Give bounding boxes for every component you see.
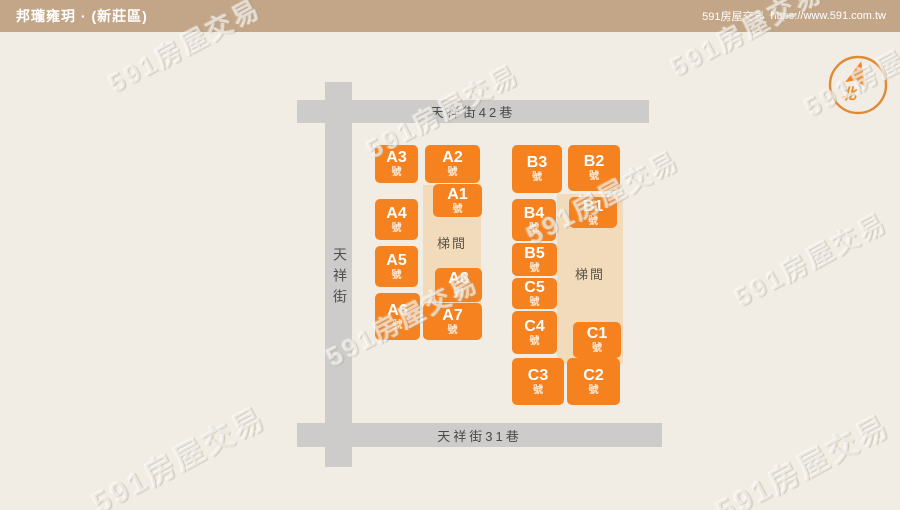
unit-label: C5 bbox=[524, 279, 544, 297]
page-title: 邦瓏雍玥 · (新莊區) bbox=[16, 6, 148, 26]
stair-label-bc: 梯間 bbox=[557, 264, 623, 283]
unit-label: C4 bbox=[524, 318, 544, 336]
watermark: 591房屋交易 bbox=[727, 203, 893, 315]
unit-label: B5 bbox=[524, 245, 544, 263]
unit-suffix: 號 bbox=[393, 320, 403, 332]
unit-block-B1[interactable]: B1號 bbox=[569, 197, 617, 228]
unit-label: C1 bbox=[587, 325, 607, 343]
unit-suffix: 號 bbox=[530, 263, 540, 275]
unit-label: B2 bbox=[584, 153, 604, 171]
unit-label: A4 bbox=[386, 205, 406, 223]
unit-suffix: 號 bbox=[589, 385, 599, 397]
unit-label: C2 bbox=[583, 367, 603, 385]
unit-block-A5[interactable]: A5號 bbox=[375, 246, 418, 287]
unit-suffix: 號 bbox=[529, 223, 539, 235]
north-compass-icon: 北 bbox=[827, 54, 889, 116]
stair-label-a: 梯間 bbox=[423, 233, 481, 252]
unit-label: C3 bbox=[528, 367, 548, 385]
site-url: https://www.591.com.tw bbox=[770, 10, 886, 22]
site-name: 591房屋交易 bbox=[702, 8, 764, 24]
unit-suffix: 號 bbox=[588, 216, 598, 228]
unit-block-B4[interactable]: B4號 bbox=[512, 199, 556, 241]
street-left-label: 天祥街 bbox=[330, 247, 350, 310]
unit-suffix: 號 bbox=[454, 288, 464, 300]
unit-suffix: 號 bbox=[448, 167, 458, 179]
unit-suffix: 號 bbox=[453, 204, 463, 216]
unit-block-C4[interactable]: C4號 bbox=[512, 311, 557, 354]
unit-label: B3 bbox=[527, 154, 547, 172]
unit-label: B1 bbox=[583, 198, 603, 216]
unit-label: B4 bbox=[524, 205, 544, 223]
watermark: 591房屋交易 bbox=[83, 394, 272, 510]
unit-label: A5 bbox=[386, 252, 406, 270]
street-top-lane42: 天祥街42巷 bbox=[297, 100, 649, 123]
unit-suffix: 號 bbox=[392, 223, 402, 235]
unit-block-B3[interactable]: B3號 bbox=[512, 145, 562, 193]
unit-block-A3[interactable]: A3號 bbox=[375, 145, 418, 183]
unit-block-A2[interactable]: A2號 bbox=[425, 145, 480, 183]
unit-label: A2 bbox=[442, 149, 462, 167]
unit-block-C3[interactable]: C3號 bbox=[512, 358, 564, 405]
unit-suffix: 號 bbox=[589, 171, 599, 183]
watermark: 591房屋交易 bbox=[707, 402, 896, 510]
unit-label: A8 bbox=[448, 270, 468, 288]
unit-suffix: 號 bbox=[392, 270, 402, 282]
unit-label: A1 bbox=[447, 186, 467, 204]
street-bottom-lane31: 天祥街31巷 bbox=[297, 423, 662, 447]
compass-svg: 北 bbox=[827, 54, 889, 116]
unit-block-C2[interactable]: C2號 bbox=[567, 358, 620, 405]
unit-suffix: 號 bbox=[532, 172, 542, 184]
street-top-label: 天祥街42巷 bbox=[297, 100, 649, 123]
street-bottom-label: 天祥街31巷 bbox=[297, 423, 662, 447]
svg-text:北: 北 bbox=[841, 86, 858, 103]
unit-block-A4[interactable]: A4號 bbox=[375, 199, 418, 240]
unit-suffix: 號 bbox=[530, 336, 540, 348]
unit-block-A7[interactable]: A7號 bbox=[423, 303, 482, 340]
site-credit: 591房屋交易 https://www.591.com.tw bbox=[702, 8, 886, 24]
unit-label: A6 bbox=[387, 302, 407, 320]
unit-suffix: 號 bbox=[392, 167, 402, 179]
header-bar: 邦瓏雍玥 · (新莊區) 591房屋交易 https://www.591.com… bbox=[0, 0, 900, 32]
unit-block-A6[interactable]: A6號 bbox=[375, 293, 420, 340]
unit-suffix: 號 bbox=[592, 343, 602, 355]
unit-block-A8[interactable]: A8號 bbox=[435, 268, 482, 302]
site-plan-stage: 邦瓏雍玥 · (新莊區) 591房屋交易 https://www.591.com… bbox=[0, 0, 900, 510]
unit-suffix: 號 bbox=[530, 297, 540, 309]
unit-suffix: 號 bbox=[448, 325, 458, 337]
unit-block-B5[interactable]: B5號 bbox=[512, 243, 557, 276]
unit-suffix: 號 bbox=[533, 385, 543, 397]
unit-label: A3 bbox=[386, 149, 406, 167]
unit-block-C5[interactable]: C5號 bbox=[512, 278, 557, 309]
unit-label: A7 bbox=[442, 307, 462, 325]
unit-block-B2[interactable]: B2號 bbox=[568, 145, 620, 191]
unit-block-A1[interactable]: A1號 bbox=[433, 184, 482, 217]
unit-block-C1[interactable]: C1號 bbox=[573, 322, 621, 358]
